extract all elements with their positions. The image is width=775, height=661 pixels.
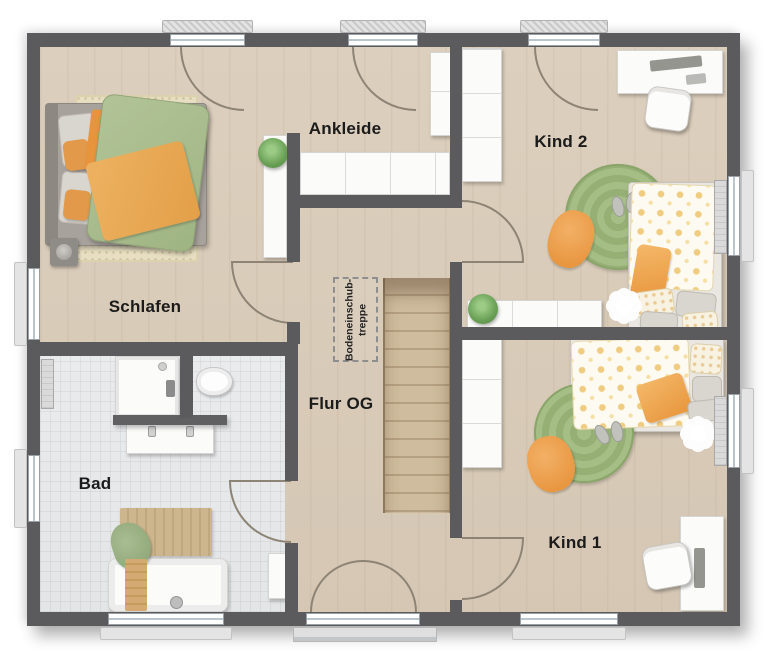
window-bad-bottom [108,613,224,625]
room-label-bad: Bad [79,474,112,494]
window-kind1-right [728,394,740,468]
window-ankleide-top [348,34,418,46]
door-leaf-schlafen [231,261,293,263]
bathtub-faucet [170,596,183,609]
window-bad-left [28,455,40,522]
monitor [694,548,705,588]
wall-flur-kind1-upper [450,340,462,538]
window-kind1-bottom [520,613,618,625]
wall-shower-stub [180,356,193,418]
window-sill [14,262,27,346]
shutter-box [520,20,608,33]
keyboard [686,73,707,85]
orange-cushion [63,189,92,222]
attic-stairs-label: Bodeneinschub- treppe [343,270,368,370]
room-label-kind1: Kind 1 [548,533,601,553]
radiator-kind1 [714,396,727,466]
ankleide-wardrobe-right [430,52,452,136]
wall-bad-right-lower [285,543,298,612]
window-kind2-right [728,176,740,256]
attic-label-line2: treppe [356,270,369,370]
shutter-box [162,20,253,33]
kind2-wardrobe [462,48,502,182]
wall-kind2-kind1-divider [450,327,727,340]
window-schlafen-left [28,268,40,340]
staircase [383,278,450,513]
toilet [196,367,233,396]
french-door-flur [306,613,420,625]
wall-flur-kind2-lower [450,262,462,327]
bath-half-wall-ledge [113,415,227,425]
attic-label-line1: Bodeneinschub- [343,270,356,370]
ankleide-wardrobe-long [300,152,450,195]
kind1-pillow [689,343,723,375]
room-label-flur: Flur OG [309,394,374,414]
window-sill [741,170,754,262]
kind2-desk-chair [643,85,692,133]
kind1-desk-chair [641,540,694,591]
faucet [186,426,194,437]
room-label-kind2: Kind 2 [534,132,587,152]
kind1-side-table [690,426,706,442]
wall-schlafen-right-stub [287,322,300,344]
floor-plan: Bodeneinschub- treppe Schlafen Ankleide … [0,0,775,661]
room-label-schlafen: Schlafen [109,297,181,317]
window-sill [100,627,232,640]
wall-ankleide-bottom [298,195,462,208]
potted-plant [258,138,288,168]
door-leaf-kind2 [462,261,524,263]
shower-fixture [166,380,175,397]
wall-flur-kind2-upper [450,47,462,200]
bed-headboard [45,103,58,246]
shutter-box [340,20,426,33]
room-label-ankleide: Ankleide [309,119,381,139]
window-schlafen-top [170,34,245,46]
wall-bad-right-upper [285,356,298,481]
vanity-double-sink [126,424,214,454]
radiator-kind2 [714,180,727,254]
attic-stairs-dashed-box: Bodeneinschub- treppe [333,277,378,362]
window-sill [14,449,27,528]
wall-flur-kind1-stub [450,600,462,612]
bathtub-caddy [125,559,147,611]
door-leaf-kind1 [462,537,524,539]
wall-schlafen-bad [40,342,298,356]
window-sill [741,388,754,474]
potted-plant [468,294,498,324]
window-sill [512,627,626,640]
bad-towel-radiator [41,359,54,409]
shower-drain [158,362,167,371]
faucet [148,426,156,437]
door-leaf-bad [229,480,291,482]
kind1-wardrobe [462,335,502,468]
window-kind2-top [528,34,600,46]
balcony-step [293,627,437,642]
wall-outer-right [727,33,740,626]
table-lamp [56,244,72,260]
kind2-side-table [616,298,632,314]
